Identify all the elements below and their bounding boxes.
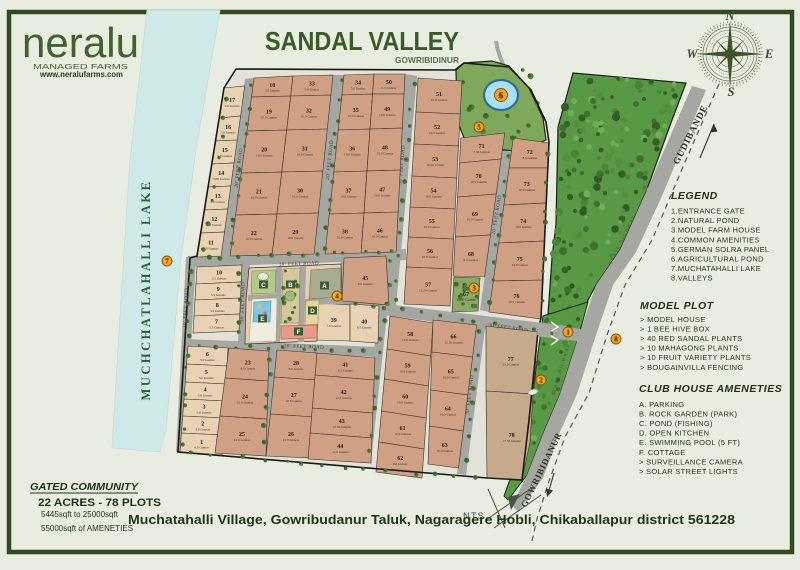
svg-text:5: 5	[477, 124, 481, 132]
svg-text:> MODEL HOUSE: > MODEL HOUSE	[640, 315, 706, 324]
svg-text:14.0 Guntas: 14.0 Guntas	[512, 263, 529, 267]
svg-text:2.NATURAL POND: 2.NATURAL POND	[671, 216, 740, 225]
svg-text:9.5 Guntas: 9.5 Guntas	[464, 258, 479, 262]
svg-text:5.0 Guntas: 5.0 Guntas	[197, 410, 212, 414]
svg-text:10.0 Guntas: 10.0 Guntas	[443, 375, 460, 379]
svg-text:10.0 Guntas: 10.0 Guntas	[519, 188, 536, 192]
svg-text:17.50 Guntas: 17.50 Guntas	[503, 439, 522, 443]
svg-text:5.0 Guntas: 5.0 Guntas	[200, 358, 215, 362]
svg-text:12.0 Guntas: 12.0 Guntas	[234, 438, 251, 442]
svg-text:7: 7	[165, 258, 169, 266]
svg-text:10.0 Guntas: 10.0 Guntas	[424, 225, 441, 229]
svg-text:13.5 Guntas: 13.5 Guntas	[508, 300, 525, 304]
svg-text:1.ENTRANCE GATE: 1.ENTRANCE GATE	[671, 207, 745, 216]
svg-text:neralu: neralu	[22, 19, 139, 66]
svg-text:10.0 Guntas: 10.0 Guntas	[344, 152, 361, 156]
svg-text:10.0 Guntas: 10.0 Guntas	[301, 114, 318, 118]
svg-text:D. OPEN KITCHEN: D. OPEN KITCHEN	[639, 429, 709, 438]
svg-text:3.MODEL FARM HOUSE: 3.MODEL FARM HOUSE	[671, 226, 761, 235]
svg-text:E: E	[764, 47, 773, 61]
svg-text:10.0 Guntas: 10.0 Guntas	[422, 255, 439, 259]
svg-text:F: F	[297, 329, 301, 336]
svg-text:> 10 MAHAGONG PLANTS: > 10 MAHAGONG PLANTS	[640, 344, 739, 353]
svg-text:10.0 Guntas: 10.0 Guntas	[429, 131, 446, 135]
svg-text:5.0 Guntas: 5.0 Guntas	[204, 246, 219, 250]
svg-text:10.0 Guntas: 10.0 Guntas	[431, 98, 448, 102]
svg-text:CLUB HOUSE AMENETIES: CLUB HOUSE AMENETIES	[639, 383, 782, 395]
svg-text:6.5 Guntas: 6.5 Guntas	[357, 325, 372, 329]
svg-text:N: N	[724, 9, 735, 23]
svg-text:10.0 Guntas: 10.0 Guntas	[340, 194, 357, 198]
svg-text:10.0 Guntas: 10.0 Guntas	[256, 153, 273, 157]
svg-text:10.0 Guntas: 10.0 Guntas	[515, 225, 532, 229]
svg-text:2: 2	[539, 377, 543, 385]
svg-text:6: 6	[499, 91, 504, 101]
svg-text:12.20 Guntas: 12.20 Guntas	[419, 288, 438, 292]
svg-text:10.0 Guntas: 10.0 Guntas	[292, 194, 309, 198]
svg-text:18.50 Guntas: 18.50 Guntas	[426, 163, 445, 167]
svg-text:SANDAL VALLEY: SANDAL VALLEY	[265, 26, 459, 56]
svg-text:5.0 Guntas: 5.0 Guntas	[195, 427, 210, 431]
svg-text:10.0 Guntas: 10.0 Guntas	[251, 195, 268, 199]
svg-text:10.0 Guntas: 10.0 Guntas	[402, 338, 419, 342]
svg-text:10.0 Guntas: 10.0 Guntas	[287, 236, 304, 240]
svg-text:8.5 Guntas: 8.5 Guntas	[522, 156, 537, 160]
svg-text:11.50 Guntas: 11.50 Guntas	[456, 298, 476, 302]
svg-text:> SURVEILLANCE CAMERA: > SURVEILLANCE CAMERA	[639, 457, 743, 466]
svg-text:10.0 Guntas: 10.0 Guntas	[440, 412, 457, 416]
svg-text:8: 8	[614, 336, 618, 344]
svg-text:5.5 Guntas: 5.5 Guntas	[209, 325, 224, 329]
svg-text:12.50 Guntas: 12.50 Guntas	[444, 340, 463, 344]
svg-text:10.0 Guntas: 10.0 Guntas	[286, 399, 303, 403]
svg-text:> 10 FRUIT VARIETY PLANTS: > 10 FRUIT VARIETY PLANTS	[640, 353, 751, 362]
svg-text:5.5 Guntas: 5.5 Guntas	[211, 293, 226, 297]
svg-text:D: D	[310, 308, 315, 315]
svg-text:GOWRIBIDINUR: GOWRIBIDINUR	[395, 55, 459, 65]
svg-text:www.neralufarms.com: www.neralufarms.com	[39, 70, 123, 79]
svg-text:10.0 Guntas: 10.0 Guntas	[237, 400, 254, 404]
svg-text:7.MUCHATAHALLI LAKE: 7.MUCHATAHALLI LAKE	[671, 264, 761, 273]
svg-text:S: S	[728, 85, 735, 99]
svg-text:1: 1	[566, 329, 570, 337]
svg-text:10.0 Guntas: 10.0 Guntas	[372, 234, 389, 238]
svg-text:9.0 Guntas: 9.0 Guntas	[393, 462, 408, 466]
svg-text:5.00 Guntas: 5.00 Guntas	[213, 177, 230, 181]
svg-text:C: C	[261, 282, 266, 289]
svg-text:MUCHCHATLAHALLI LAKE: MUCHCHATLAHALLI LAKE	[139, 180, 153, 401]
svg-text:> SOLAR STREET LIGHTS: > SOLAR STREET LIGHTS	[639, 467, 738, 476]
svg-text:4: 4	[335, 293, 339, 301]
svg-text:5.5 Guntas: 5.5 Guntas	[265, 89, 280, 93]
svg-text:5445sqft to 25000sqft: 5445sqft to 25000sqft	[41, 510, 119, 519]
svg-text:10.0 Guntas: 10.0 Guntas	[297, 152, 314, 156]
svg-text:4.COMMON AMENITIES: 4.COMMON AMENITIES	[671, 235, 760, 244]
svg-text:5.5 Guntas: 5.5 Guntas	[212, 276, 227, 280]
svg-text:> BOUGAINVILLA FENCING: > BOUGAINVILLA FENCING	[640, 363, 744, 372]
svg-text:3: 3	[472, 285, 476, 293]
svg-text:12.0 Guntas: 12.0 Guntas	[335, 396, 352, 400]
svg-text:10.0 Guntas: 10.0 Guntas	[437, 449, 454, 453]
svg-text:8.VALLEYS: 8.VALLEYS	[671, 274, 713, 283]
svg-text:10.0 Guntas: 10.0 Guntas	[379, 113, 396, 117]
svg-text:5.GERMAN SOLRA PANEL: 5.GERMAN SOLRA PANEL	[671, 245, 769, 254]
svg-text:10.0 Guntas: 10.0 Guntas	[374, 193, 391, 197]
svg-text:A: A	[322, 283, 327, 290]
svg-text:10.0 Guntas: 10.0 Guntas	[394, 432, 411, 436]
svg-text:F. COTTAGE: F. COTTAGE	[639, 448, 686, 457]
svg-text:5.0 Guntas: 5.0 Guntas	[199, 376, 214, 380]
svg-text:10.50 Guntas: 10.50 Guntas	[333, 425, 352, 429]
svg-text:55000sqft of AMENETIES: 55000sqft of AMENETIES	[41, 524, 133, 533]
svg-text:A. PARKING: A. PARKING	[639, 400, 684, 409]
svg-text:67: 67	[463, 291, 470, 298]
svg-text:5.0 Guntas: 5.0 Guntas	[351, 86, 366, 90]
svg-text:9.0 Guntas: 9.0 Guntas	[358, 282, 373, 286]
svg-text:10.0 Guntas: 10.0 Guntas	[397, 400, 414, 404]
svg-text:22 ACRES - 78 PLOTS: 22 ACRES - 78 PLOTS	[38, 497, 161, 509]
svg-text:6.5 Guntas: 6.5 Guntas	[194, 446, 209, 450]
svg-text:10.0 Guntas: 10.0 Guntas	[399, 369, 416, 373]
svg-text:> 1 BEE HIVE BOX: > 1 BEE HIVE BOX	[640, 325, 710, 334]
svg-text:GATED COMMUNITY: GATED COMMUNITY	[30, 481, 139, 493]
svg-text:10.0 Guntas: 10.0 Guntas	[337, 235, 354, 239]
svg-text:11.0 Guntas: 11.0 Guntas	[332, 450, 349, 454]
svg-text:9.5 Guntas: 9.5 Guntas	[338, 368, 353, 372]
svg-text:7.30 Guntas: 7.30 Guntas	[473, 150, 490, 154]
svg-text:5.0 Guntas: 5.0 Guntas	[198, 393, 213, 397]
svg-text:MODEL PLOT: MODEL PLOT	[640, 300, 715, 312]
svg-text:B: B	[288, 282, 293, 289]
svg-text:15.0 Guntas: 15.0 Guntas	[283, 438, 300, 442]
svg-text:25.0 Guntas: 25.0 Guntas	[503, 363, 520, 367]
svg-text:9.0 Guntas: 9.0 Guntas	[225, 104, 240, 108]
svg-text:5.0 Guntas: 5.0 Guntas	[221, 131, 236, 135]
svg-text:7.0 Guntas: 7.0 Guntas	[326, 324, 341, 328]
svg-text:10.0 Guntas: 10.0 Guntas	[467, 218, 484, 222]
svg-text:8.0 Guntas: 8.0 Guntas	[289, 367, 304, 371]
svg-text:5.5 Guntas: 5.5 Guntas	[210, 309, 225, 313]
svg-text:E. SWIMMING POOL (5 FT): E. SWIMMING POOL (5 FT)	[639, 438, 740, 447]
svg-text:Muchatahalli Village, Gowribud: Muchatahalli Village, Gowribudanur Taluk…	[128, 512, 735, 527]
svg-text:10.0 Guntas: 10.0 Guntas	[261, 115, 278, 119]
svg-text:> 40 RED SANDAL PLANTS: > 40 RED SANDAL PLANTS	[640, 334, 742, 343]
svg-text:10.0 Guntas: 10.0 Guntas	[348, 114, 365, 118]
svg-text:10.0 Guntas: 10.0 Guntas	[425, 194, 442, 198]
svg-text:10.0 Guntas: 10.0 Guntas	[470, 180, 487, 184]
svg-text:9.0 Guntas: 9.0 Guntas	[240, 366, 255, 370]
svg-text:W: W	[686, 47, 698, 61]
svg-text:E: E	[260, 316, 264, 323]
svg-text:C. POND (FISHING): C. POND (FISHING)	[639, 419, 713, 428]
svg-text:5.0 Guntas: 5.0 Guntas	[305, 87, 320, 91]
svg-text:6.AGRICULTURAL POND: 6.AGRICULTURAL POND	[671, 255, 764, 264]
svg-text:LEGEND: LEGEND	[671, 190, 718, 202]
svg-text:10.0 Guntas: 10.0 Guntas	[377, 151, 394, 155]
svg-text:5.5 Guntas: 5.5 Guntas	[382, 86, 397, 90]
svg-text:B. ROCK GARDEN (PARK): B. ROCK GARDEN (PARK)	[639, 410, 737, 419]
svg-text:10.0 Guntas: 10.0 Guntas	[246, 237, 263, 241]
